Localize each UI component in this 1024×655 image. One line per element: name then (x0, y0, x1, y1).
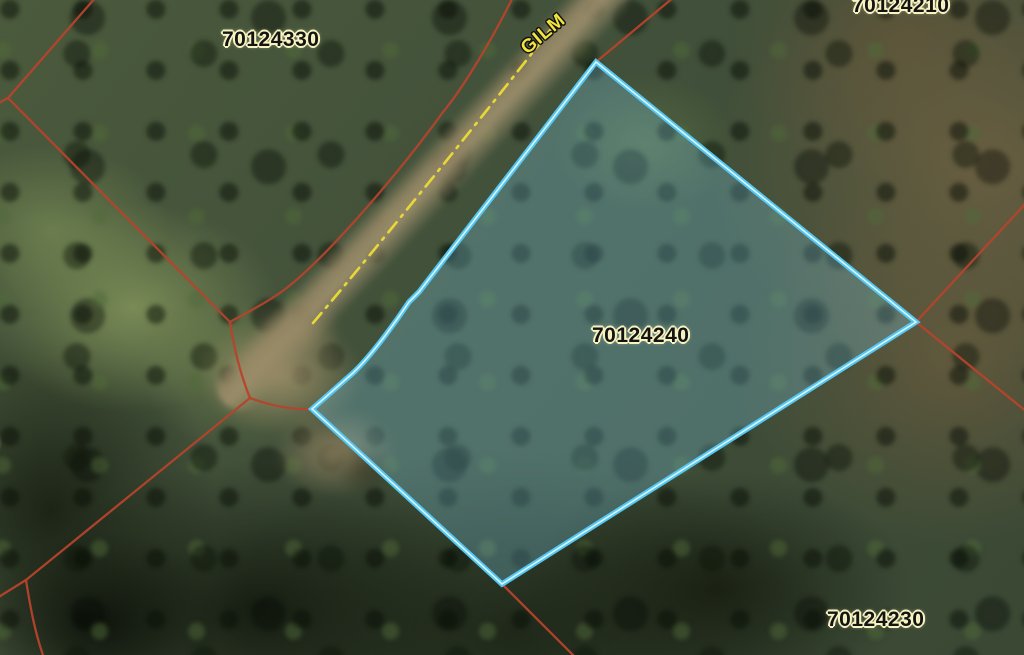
boundary-line-segment (916, 322, 1024, 412)
boundary-line-segment (8, 98, 230, 322)
parcel-map-view[interactable]: 70124330 70124210 70124240 70124230 0 GI… (0, 0, 1024, 655)
boundary-line-segment (502, 584, 576, 655)
boundary-line-segment (26, 398, 250, 580)
parcel-label: 70124210 (852, 0, 949, 18)
boundary-line-segment (230, 322, 250, 398)
boundary-line-segment (250, 398, 312, 409)
parcel-label: 70124330 (222, 28, 319, 52)
boundary-line-segment (8, 0, 96, 98)
boundary-line-segment (0, 98, 8, 104)
boundary-line-segment (596, 0, 674, 62)
boundary-line-segment (0, 580, 26, 598)
parcel-label-selected: 70124240 (592, 324, 689, 348)
boundary-line-segment (26, 580, 44, 655)
selected-parcel-polygon[interactable] (312, 62, 916, 584)
parcel-label: 70124230 (827, 608, 924, 632)
boundary-line-segment (916, 202, 1024, 322)
boundary-overlay (0, 0, 1024, 655)
